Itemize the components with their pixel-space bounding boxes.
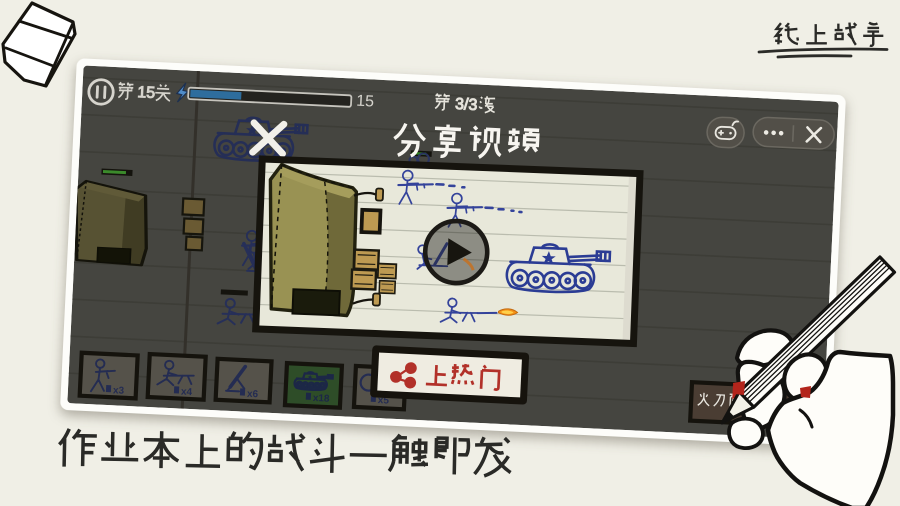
svg-text:15: 15 bbox=[137, 84, 156, 102]
svg-text:x6: x6 bbox=[247, 389, 259, 401]
svg-text:15: 15 bbox=[356, 93, 375, 111]
svg-text:x18: x18 bbox=[313, 393, 331, 405]
svg-text:x3: x3 bbox=[113, 385, 125, 397]
svg-text:x4: x4 bbox=[181, 387, 193, 399]
svg-text:3/3: 3/3 bbox=[455, 96, 478, 114]
